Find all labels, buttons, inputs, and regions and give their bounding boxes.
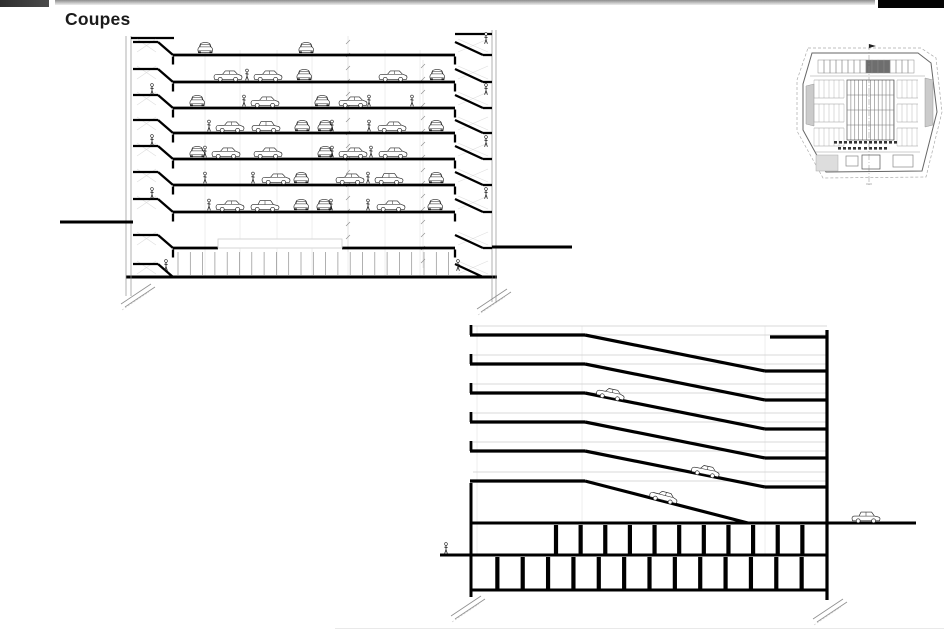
person-icon xyxy=(367,120,370,131)
person-icon xyxy=(242,95,245,106)
person-icon xyxy=(150,188,153,199)
section-b-drawing xyxy=(440,325,916,625)
car-side-icon xyxy=(254,71,282,81)
person-icon xyxy=(207,199,210,210)
car-side-icon xyxy=(379,71,407,81)
ground-floor xyxy=(126,239,497,277)
suv-side-icon xyxy=(252,122,280,133)
person-icon xyxy=(367,95,370,106)
car-front-icon xyxy=(318,147,333,158)
page-bottom-rule xyxy=(335,628,944,629)
person-icon xyxy=(444,543,447,554)
car-front-icon xyxy=(297,70,312,81)
car-side-icon xyxy=(212,148,240,158)
car-front-icon xyxy=(190,96,205,107)
car-side-icon xyxy=(339,97,367,107)
suv-side-icon xyxy=(852,512,880,523)
car-front-icon xyxy=(318,121,333,132)
stair-core-left xyxy=(126,36,174,296)
car-front-icon xyxy=(190,147,205,158)
car-front-icon xyxy=(315,96,330,107)
car-side-icon xyxy=(379,148,407,158)
car-front-icon xyxy=(428,200,443,211)
suv-side-icon xyxy=(375,174,403,185)
car-side-icon xyxy=(377,201,405,211)
section-a-drawing xyxy=(60,30,572,315)
person-icon xyxy=(150,135,153,146)
vehicles-and-people xyxy=(150,33,487,271)
car-front-icon xyxy=(430,70,445,81)
car-front-icon xyxy=(429,121,444,132)
car-side-icon xyxy=(339,148,367,158)
car-side-icon xyxy=(649,488,679,505)
vehicles-and-people xyxy=(444,386,880,554)
column-grid-lines xyxy=(473,326,827,555)
person-icon xyxy=(150,84,153,95)
car-front-icon xyxy=(429,173,444,184)
car-front-icon xyxy=(294,173,309,184)
plan-thumbnail-drawing xyxy=(797,44,942,186)
car-front-icon xyxy=(294,200,309,211)
person-icon xyxy=(245,69,248,80)
person-icon xyxy=(410,95,413,106)
car-front-icon xyxy=(198,43,213,54)
suv-side-icon xyxy=(251,201,279,212)
car-side-icon xyxy=(262,174,290,184)
person-icon xyxy=(484,136,487,147)
car-side-icon xyxy=(214,71,242,81)
person-icon xyxy=(251,172,254,183)
person-icon xyxy=(164,260,167,271)
person-icon xyxy=(366,172,369,183)
car-front-icon xyxy=(317,200,332,211)
car-side-icon xyxy=(254,148,282,158)
coupes-drawings xyxy=(0,0,944,633)
person-icon xyxy=(369,146,372,157)
car-side-icon xyxy=(378,122,406,132)
person-icon xyxy=(207,120,210,131)
person-icon xyxy=(484,33,487,44)
car-side-icon xyxy=(251,97,279,107)
car-side-icon xyxy=(336,174,364,184)
person-icon xyxy=(366,199,369,210)
substructure xyxy=(440,523,916,590)
car-front-icon xyxy=(299,43,314,54)
stair-core-right xyxy=(455,30,496,302)
car-front-icon xyxy=(295,121,310,132)
